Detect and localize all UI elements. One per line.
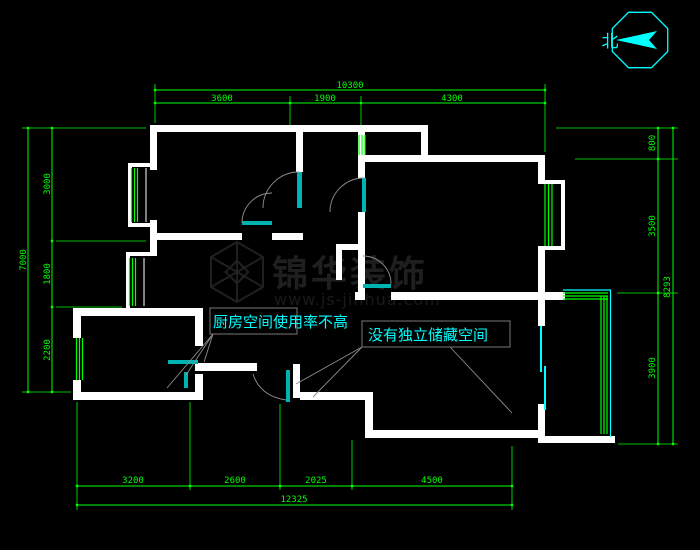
- compass-arrow-icon: [616, 31, 657, 49]
- dim-right-seg1: 800: [648, 135, 658, 151]
- door-lower-bath: [253, 370, 290, 402]
- dim-top-seg2: 1900: [314, 94, 336, 104]
- dim-top-seg3: 4300: [441, 94, 463, 104]
- dim-left-seg3: 2200: [43, 339, 53, 361]
- watermark-logo-icon: [211, 242, 263, 302]
- dim-left-seg1: 3000: [43, 173, 53, 195]
- dim-right-total: 8293: [663, 276, 673, 298]
- kitchen-annotation-text: 厨房空间使用率不高: [213, 313, 348, 331]
- dim-left-seg2: 1800: [43, 263, 53, 285]
- watermark-title: 锦华装饰: [272, 254, 428, 295]
- dimension-bottom: 3200 2600 2025 4500 12325: [76, 402, 513, 510]
- dim-right-seg3: 3900: [648, 357, 658, 379]
- door-bathroom: [330, 178, 366, 212]
- dim-top-total: 10300: [336, 81, 363, 91]
- dim-bottom-seg3: 2025: [305, 476, 327, 486]
- floor-plan: 锦华装饰 www.js-jinhua.com 10300 3600 1900 4…: [0, 0, 700, 550]
- north-compass: 北: [602, 12, 668, 67]
- dim-bottom-seg4: 4500: [421, 476, 443, 486]
- storage-annotation-text: 没有独立储藏空间: [368, 326, 488, 344]
- compass-north-label: 北: [602, 32, 619, 52]
- window-balcony-corner: [563, 290, 611, 437]
- dim-left-total: 7000: [19, 249, 29, 271]
- door-balcony-slider: [541, 326, 545, 410]
- door-bedroom1: [242, 193, 272, 225]
- dimension-right: 800 3500 3900 8293: [556, 127, 678, 445]
- window-bay-right-bedroom: [545, 184, 552, 246]
- cad-canvas: 锦华装饰 www.js-jinhua.com 10300 3600 1900 4…: [0, 0, 700, 550]
- dim-top-seg1: 3600: [211, 94, 233, 104]
- window-bay-upper-left: [132, 168, 147, 222]
- dim-bottom-total: 12325: [280, 495, 307, 505]
- dim-bottom-seg2: 2600: [224, 476, 246, 486]
- door-entry-hall: [263, 172, 302, 208]
- annotation-kitchen: 厨房空间使用率不高: [167, 308, 348, 388]
- dim-bottom-seg1: 3200: [122, 476, 144, 486]
- window-kitchen: [77, 338, 83, 380]
- dim-right-seg2: 3500: [648, 215, 658, 237]
- dimension-top: 10300 3600 1900 4300: [154, 81, 546, 152]
- window-bay-mid-left: [130, 258, 145, 306]
